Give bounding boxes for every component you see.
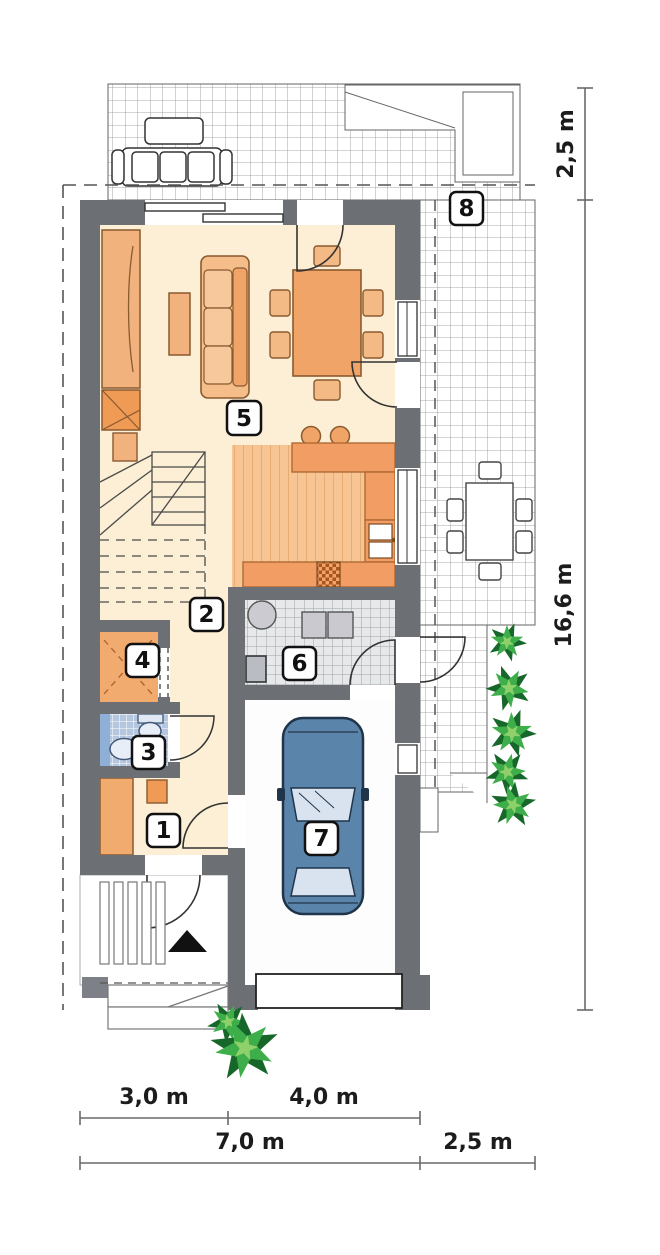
porch-steps bbox=[108, 985, 228, 1029]
floor-plan-canvas: 1 2 3 4 5 6 7 8 2,5 m 16,6 m 3,0 m 4,0 m bbox=[0, 0, 660, 1255]
car bbox=[277, 718, 369, 914]
utility-cabinet bbox=[246, 656, 266, 682]
sofa bbox=[201, 256, 249, 398]
tv-cabinet bbox=[102, 390, 140, 430]
kitchen-window bbox=[395, 468, 420, 565]
coffee-table bbox=[169, 293, 190, 355]
garage-window bbox=[395, 743, 420, 775]
room-label-7-text: 7 bbox=[313, 826, 329, 852]
dim-bottom-total: 7,0 m bbox=[215, 1130, 285, 1155]
room-label-5: 5 bbox=[227, 401, 261, 435]
dim-bottom-right: 2,5 m bbox=[443, 1130, 513, 1155]
floor-plan-page: 1 2 3 4 5 6 7 8 2,5 m 16,6 m 3,0 m 4,0 m bbox=[0, 0, 660, 1255]
dim-bottom-mid: 4,0 m bbox=[289, 1085, 359, 1110]
appliance bbox=[302, 612, 326, 638]
terrace-right bbox=[420, 200, 535, 625]
shower-strip bbox=[100, 714, 110, 766]
room-label-8-text: 8 bbox=[458, 196, 474, 222]
dim-right-side: 16,6 m bbox=[552, 563, 577, 648]
windshield bbox=[291, 788, 355, 821]
kitchen-peninsula bbox=[292, 443, 395, 472]
dim-bottom-left: 3,0 m bbox=[119, 1085, 189, 1110]
side-step bbox=[420, 788, 438, 832]
room-label-1: 1 bbox=[147, 814, 180, 847]
side-path bbox=[420, 625, 487, 792]
room-label-1-text: 1 bbox=[155, 818, 171, 844]
room-label-8: 8 bbox=[450, 192, 483, 225]
dining-table bbox=[293, 270, 361, 376]
living-window bbox=[395, 300, 420, 358]
side-table bbox=[113, 433, 137, 461]
room-label-3-text: 3 bbox=[140, 740, 156, 766]
entry-cabinet bbox=[147, 780, 167, 803]
dim-right-top: 2,5 m bbox=[554, 109, 579, 179]
room-label-6-text: 6 bbox=[291, 651, 307, 677]
porch-block bbox=[82, 977, 108, 998]
room-label-2-text: 2 bbox=[198, 602, 214, 628]
room-label-6: 6 bbox=[283, 647, 316, 680]
hob bbox=[317, 562, 340, 587]
room-label-3: 3 bbox=[132, 736, 165, 769]
room-label-4: 4 bbox=[126, 644, 159, 677]
wardrobe bbox=[102, 230, 140, 388]
entry-wardrobe bbox=[100, 778, 133, 855]
room-label-2: 2 bbox=[190, 598, 223, 631]
room-label-7: 7 bbox=[305, 822, 338, 855]
garage-door bbox=[256, 974, 402, 1008]
sliding-glass-door bbox=[145, 200, 283, 225]
rear-window bbox=[291, 868, 355, 896]
room-label-5-text: 5 bbox=[236, 406, 252, 432]
washing-machine bbox=[248, 601, 276, 629]
appliance bbox=[328, 612, 353, 638]
room-label-4-text: 4 bbox=[134, 648, 150, 674]
